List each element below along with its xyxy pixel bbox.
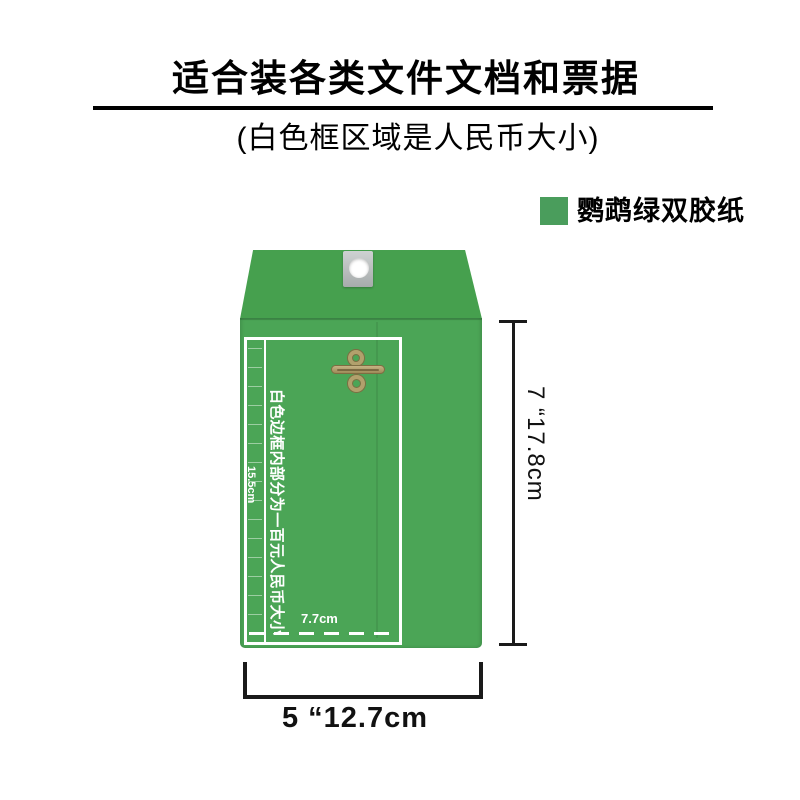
color-swatch-icon — [540, 197, 568, 225]
product-diagram: 适合装各类文件文档和票据 (白色框区域是人民币大小) 鹦鹉绿双胶纸 白色边框内部… — [0, 0, 800, 800]
page-subtitle: (白色框区域是人民币大小) — [18, 113, 800, 157]
width-dimension-tick-left — [243, 662, 247, 699]
flap-fold-line — [240, 318, 482, 320]
clasp-ring-bottom — [348, 375, 365, 392]
legend: 鹦鹉绿双胶纸 — [540, 196, 745, 226]
divider-rule — [93, 106, 713, 110]
clasp-fastener-icon — [331, 350, 385, 392]
inner-height-label: 15.5cm — [245, 466, 257, 512]
height-dimension-cap-bottom — [499, 643, 527, 646]
width-dimension-tick-right — [479, 662, 483, 699]
page-title: 适合装各类文件文档和票据 — [6, 48, 800, 102]
legend-label: 鹦鹉绿双胶纸 — [577, 196, 745, 226]
clasp-bar — [331, 365, 385, 374]
clasp-ring-top — [348, 350, 364, 366]
rmb-inner-vline — [264, 340, 266, 642]
grommet-eyelet-icon — [343, 251, 373, 287]
grommet-hole — [349, 258, 369, 278]
height-dimension-cap-top — [499, 320, 527, 323]
rmb-note-vertical: 白色边框内部分为一百元人民币大小 — [267, 389, 288, 637]
inner-width-label: 7.7cm — [301, 611, 338, 626]
height-dimension-line — [512, 320, 515, 646]
height-dimension-label: 7 “17.8cm — [521, 386, 549, 526]
width-dimension-label: 5 “12.7cm — [235, 702, 475, 735]
width-dimension-line — [243, 695, 483, 699]
